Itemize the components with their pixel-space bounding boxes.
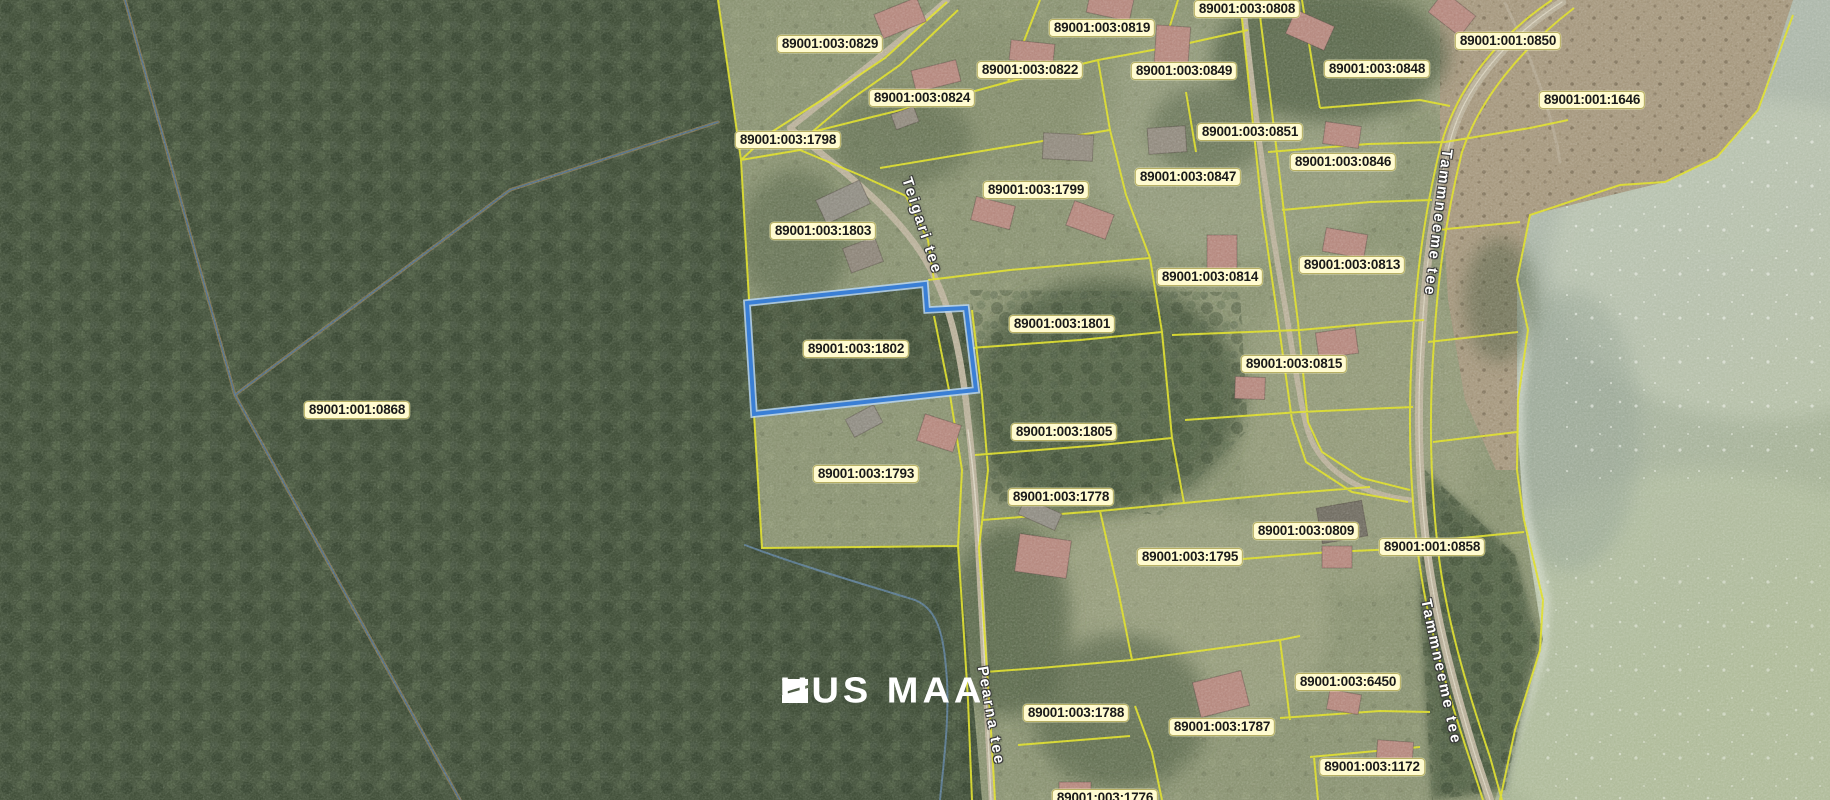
uus-maa-logo: UUS MAA bbox=[780, 676, 985, 706]
highlighted-parcel-label[interactable]: 89001:003:1802 bbox=[803, 340, 909, 358]
aerial-map-canvas[interactable]: 89001:003:0829 89001:003:0819 89001:003:… bbox=[0, 0, 1830, 800]
uus-maa-logo-text: UUS MAA bbox=[780, 677, 985, 706]
